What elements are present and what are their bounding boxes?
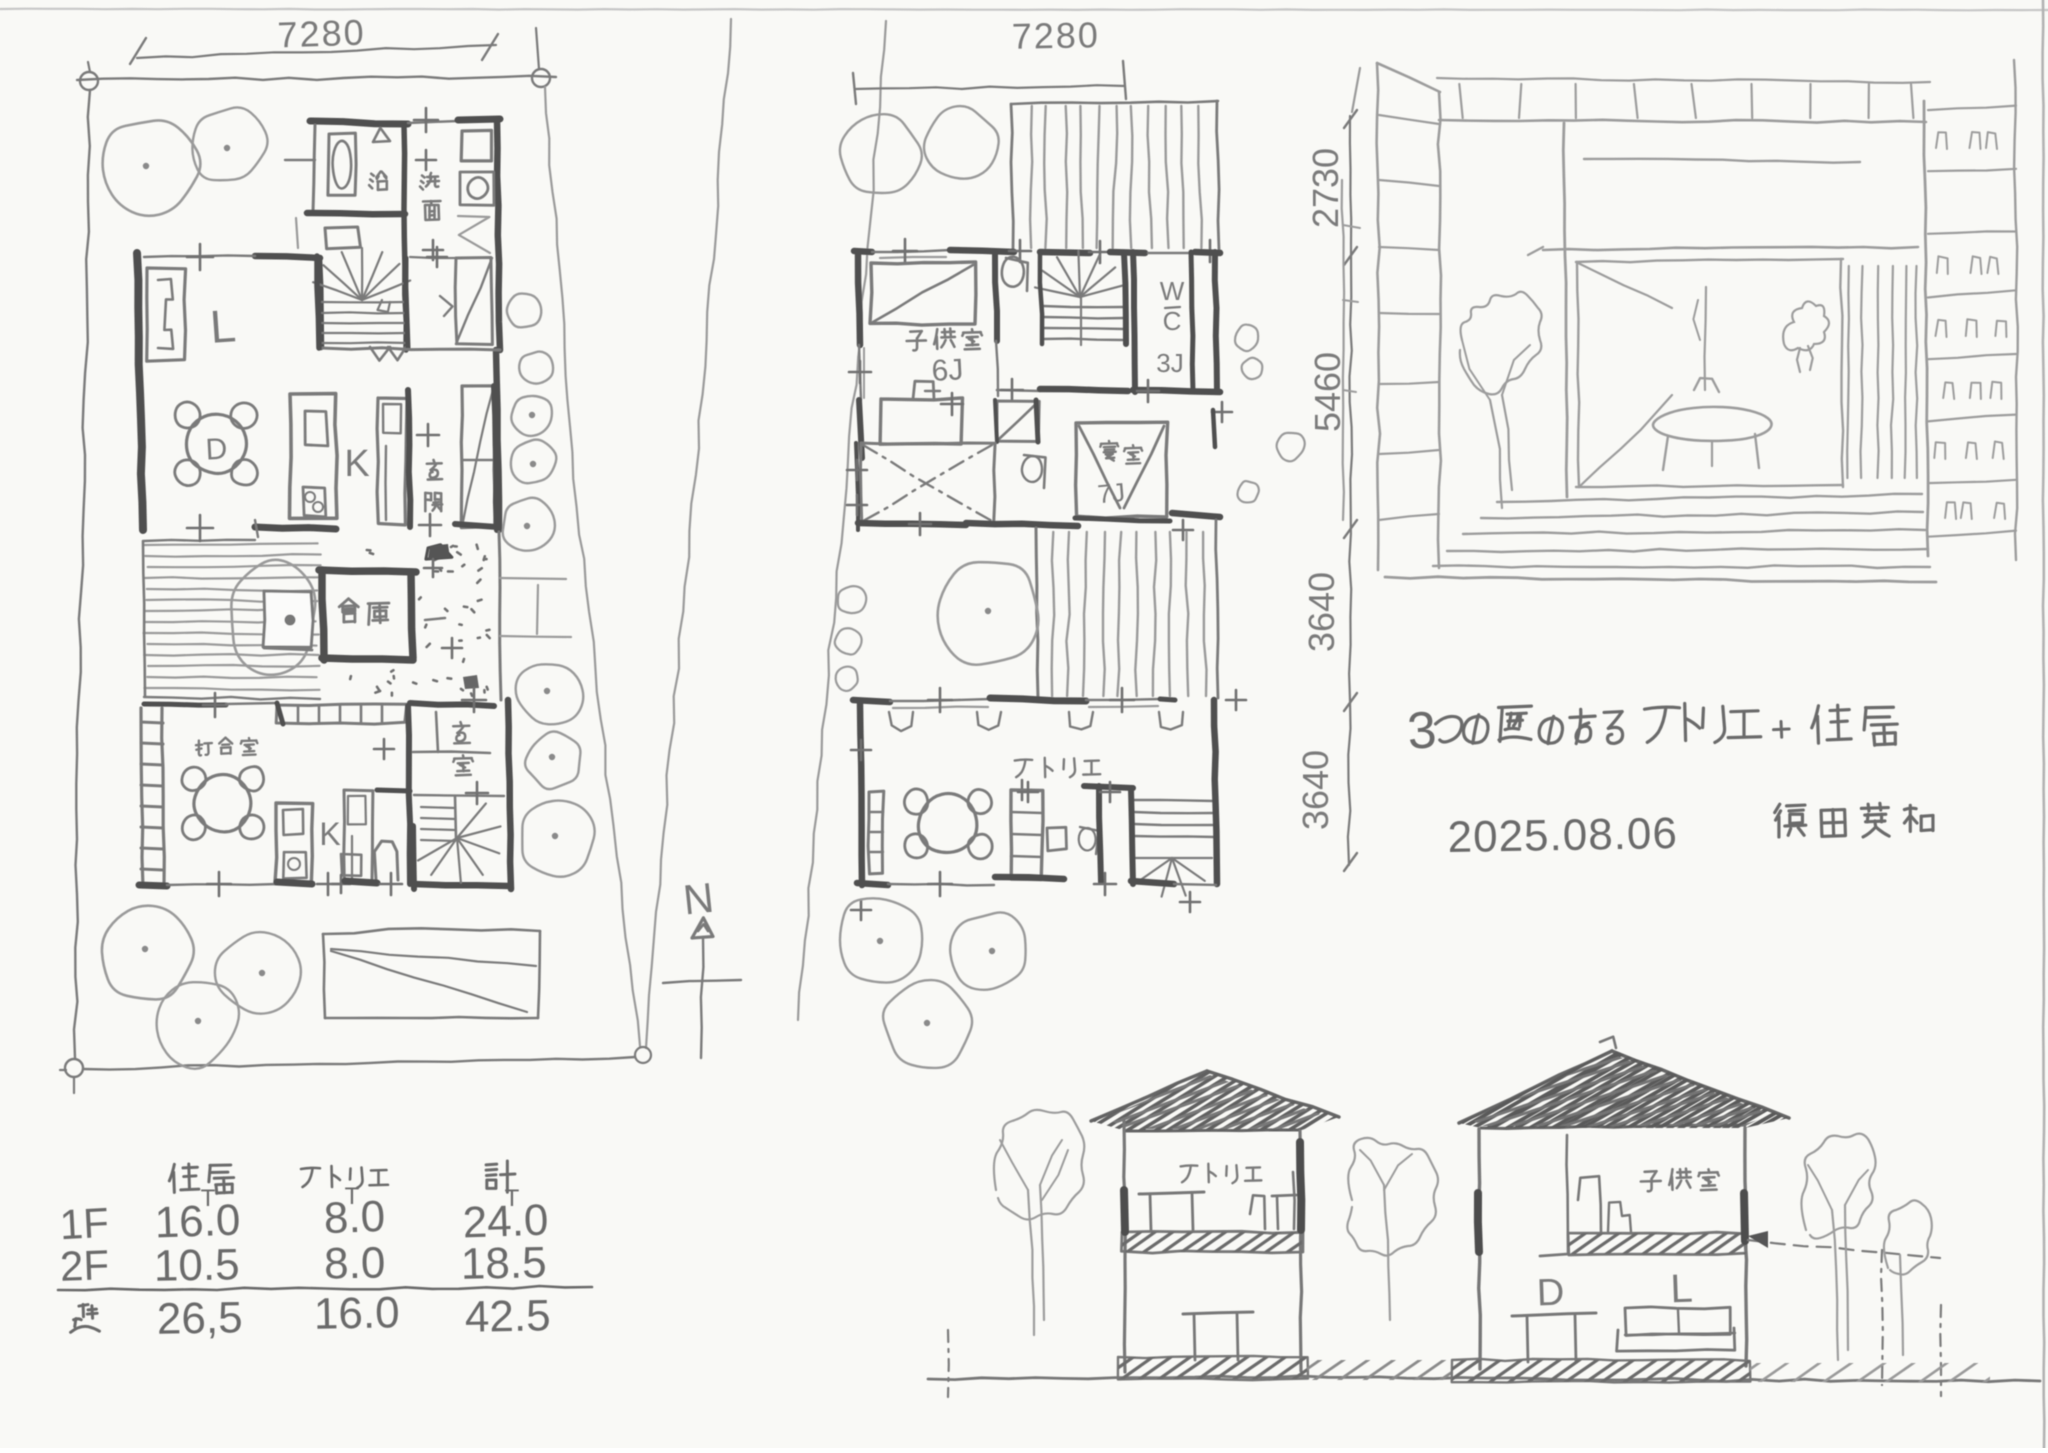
svg-text:18.5: 18.5 [461,1238,547,1288]
svg-text:T: T [505,1185,520,1212]
svg-text:2025.08.06: 2025.08.06 [1447,809,1678,862]
svg-text:K: K [344,443,369,485]
svg-text:W: W [1160,276,1185,306]
svg-text:16.0: 16.0 [314,1288,400,1338]
svg-text:7280: 7280 [1011,14,1100,57]
svg-text:2730: 2730 [1305,148,1346,228]
svg-text:3640: 3640 [1295,750,1336,830]
svg-text:5460: 5460 [1307,352,1348,432]
svg-text:D: D [1536,1272,1565,1315]
svg-text:L: L [1670,1267,1694,1312]
svg-text:3J: 3J [1156,348,1183,378]
svg-text:8.0: 8.0 [324,1238,386,1288]
svg-text:N: N [681,874,716,924]
svg-text:K: K [319,816,340,852]
svg-text:7280: 7280 [277,11,366,55]
svg-text:L: L [208,299,237,353]
svg-text:T: T [345,1183,360,1210]
svg-text:3: 3 [1405,701,1438,761]
svg-text:42.5: 42.5 [465,1291,551,1341]
svg-text:6J: 6J [931,353,964,388]
svg-text:T: T [201,1185,216,1212]
svg-text:2F: 2F [59,1241,110,1290]
svg-text:C: C [1163,306,1182,336]
svg-text:D: D [205,432,228,466]
svg-text:3640: 3640 [1301,572,1342,652]
svg-text:26,5: 26,5 [157,1293,243,1343]
svg-text:10.5: 10.5 [154,1240,240,1290]
svg-text:7J: 7J [1096,477,1126,509]
